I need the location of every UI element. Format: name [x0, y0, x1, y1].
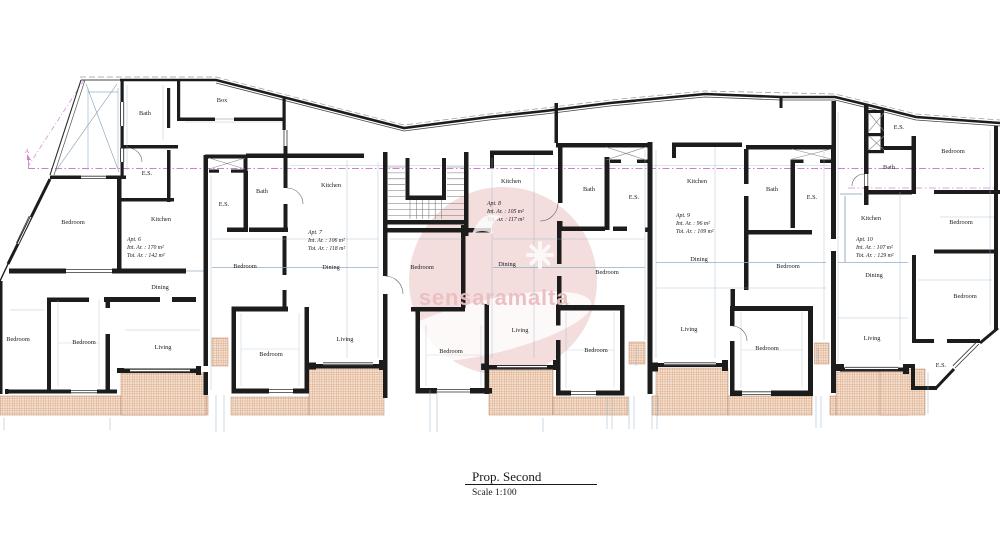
svg-text:Bedroom: Bedroom: [776, 263, 800, 270]
svg-text:Bath: Bath: [139, 110, 152, 117]
svg-text:Bedroom: Bedroom: [941, 148, 965, 155]
svg-text:Int. Ar. : 170 m²: Int. Ar. : 170 m²: [126, 245, 164, 251]
svg-text:Bedroom: Bedroom: [439, 348, 463, 355]
svg-text:Bedroom: Bedroom: [410, 264, 434, 271]
svg-text:Dining: Dining: [151, 284, 169, 291]
svg-text:Bedroom: Bedroom: [755, 345, 779, 352]
svg-text:Bedroom: Bedroom: [233, 263, 257, 270]
svg-text:Bath: Bath: [883, 164, 896, 171]
svg-text:Bedroom: Bedroom: [949, 219, 973, 226]
svg-text:E.S.: E.S.: [807, 194, 818, 201]
svg-text:Dining: Dining: [690, 256, 708, 263]
svg-text:Bedroom: Bedroom: [259, 351, 283, 358]
svg-text:Kitchen: Kitchen: [321, 182, 342, 189]
svg-text:Bedroom: Bedroom: [953, 293, 977, 300]
svg-text:Bedroom: Bedroom: [6, 336, 30, 343]
svg-text:Apt. 7: Apt. 7: [307, 230, 323, 236]
svg-text:Dining: Dining: [322, 264, 340, 271]
svg-text:Living: Living: [155, 344, 173, 351]
svg-text:Bedroom: Bedroom: [584, 347, 608, 354]
svg-text:E.S.: E.S.: [142, 170, 153, 177]
svg-text:A: A: [25, 148, 30, 155]
svg-text:Prop. Second: Prop. Second: [472, 469, 542, 484]
svg-text:Living: Living: [337, 336, 355, 343]
svg-text:Kitchen: Kitchen: [151, 216, 172, 223]
svg-text:Dining: Dining: [498, 261, 516, 268]
svg-text:E.S.: E.S.: [936, 362, 947, 369]
svg-text:Bedroom: Bedroom: [72, 339, 96, 346]
svg-text:Apt. 9: Apt. 9: [675, 213, 690, 219]
svg-text:E.S.: E.S.: [219, 201, 230, 208]
svg-text:Bath: Bath: [583, 186, 596, 193]
svg-text:Bath: Bath: [256, 188, 269, 195]
svg-text:Int. Ar. : 106 m²: Int. Ar. : 106 m²: [307, 238, 345, 244]
svg-text:Living: Living: [864, 335, 882, 342]
svg-text:Bedroom: Bedroom: [595, 269, 619, 276]
svg-text:Tot. Ar. : 142 m²: Tot. Ar. : 142 m²: [127, 252, 165, 259]
svg-text:Int. Ar. : 96 m²: Int. Ar. : 96 m²: [675, 221, 710, 227]
svg-text:Bath: Bath: [766, 186, 779, 193]
svg-text:Tot. Ar. : 129 m²: Tot. Ar. : 129 m²: [856, 253, 894, 259]
svg-text:Tot. Ar. : 109 m²: Tot. Ar. : 109 m²: [676, 229, 714, 235]
svg-text:Dining: Dining: [865, 272, 883, 279]
svg-text:Apt. 10: Apt. 10: [855, 237, 873, 243]
svg-text:Int. Ar. : 105 m²: Int. Ar. : 105 m²: [486, 209, 524, 215]
svg-text:sensaramalta: sensaramalta: [419, 285, 569, 310]
svg-text:Apt. 8: Apt. 8: [486, 201, 501, 207]
svg-text:Scale 1:100: Scale 1:100: [472, 488, 517, 498]
svg-text:Living: Living: [512, 327, 530, 334]
svg-text:E.S.: E.S.: [629, 194, 640, 201]
svg-text:Bedroom: Bedroom: [61, 219, 85, 226]
svg-text:E.S.: E.S.: [894, 124, 905, 131]
svg-text:Kitchen: Kitchen: [687, 178, 708, 185]
svg-text:Tot. Ar. : 118 m²: Tot. Ar. : 118 m²: [308, 246, 345, 252]
svg-text:Int. Ar. : 107 m²: Int. Ar. : 107 m²: [855, 245, 893, 251]
svg-text:Living: Living: [681, 326, 699, 333]
svg-text:Kitchen: Kitchen: [501, 178, 522, 185]
svg-text:Kitchen: Kitchen: [861, 215, 882, 222]
svg-text:Apt. 6: Apt. 6: [126, 237, 141, 243]
svg-text:Box: Box: [217, 97, 228, 104]
